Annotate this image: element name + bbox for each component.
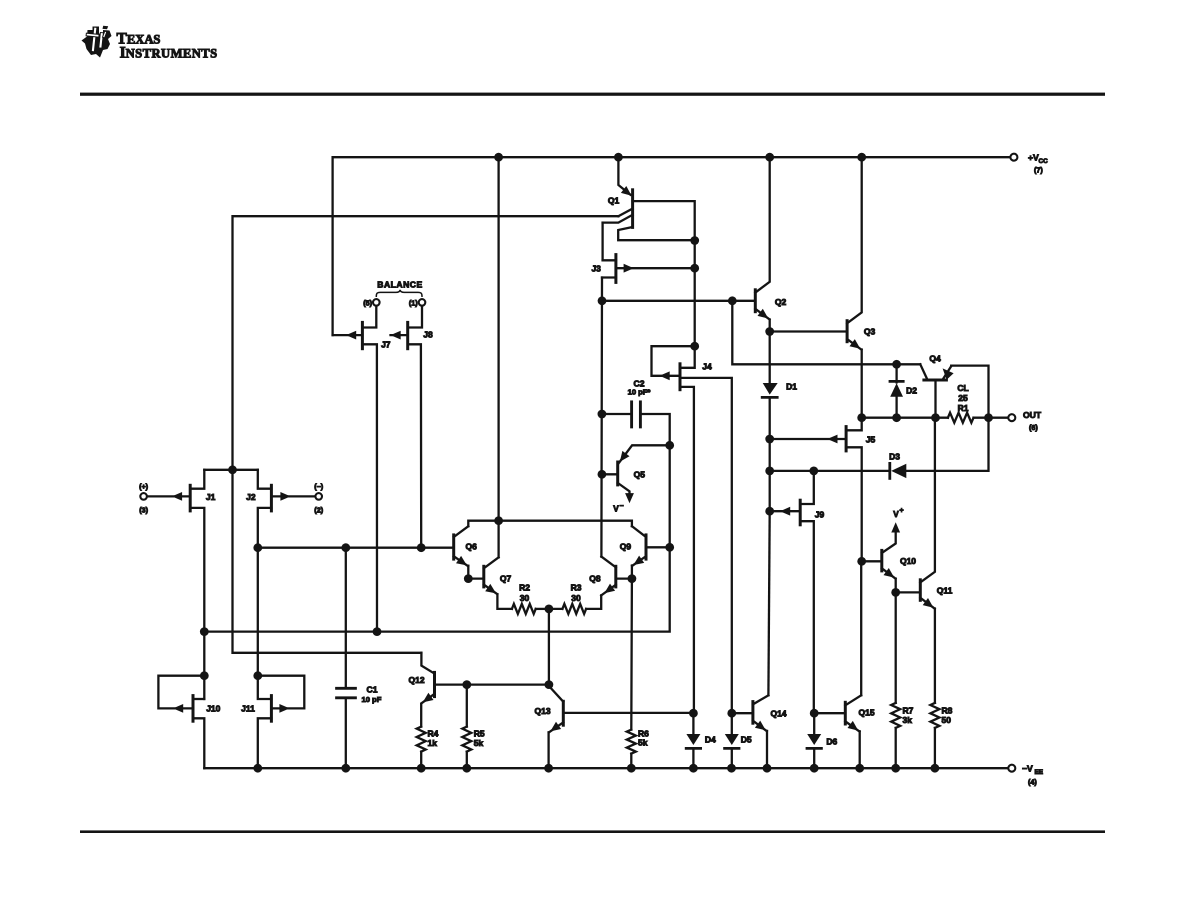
- svg-text:Q10: Q10: [900, 556, 916, 566]
- svg-text:J7: J7: [381, 339, 391, 349]
- svg-text:J5: J5: [866, 434, 876, 444]
- svg-text:J10: J10: [206, 704, 220, 714]
- svg-text:(1): (1): [409, 298, 418, 307]
- svg-text:CC: CC: [1039, 158, 1049, 165]
- svg-text:R3: R3: [571, 583, 582, 593]
- svg-text:50: 50: [942, 715, 952, 725]
- svg-text:Q4: Q4: [929, 354, 941, 364]
- svg-text:5k: 5k: [638, 738, 648, 748]
- svg-text:(7): (7): [1034, 166, 1043, 175]
- svg-text:Q14: Q14: [770, 709, 786, 719]
- svg-text:BALANCE: BALANCE: [377, 280, 423, 290]
- svg-text:Q7: Q7: [500, 574, 512, 584]
- svg-text:V: V: [613, 505, 619, 514]
- svg-text:30: 30: [571, 593, 581, 603]
- svg-text:J4: J4: [702, 362, 712, 372]
- svg-text:R5: R5: [474, 729, 485, 739]
- svg-text:3k: 3k: [903, 715, 913, 725]
- svg-text:−: −: [619, 503, 623, 510]
- svg-text:R8: R8: [942, 705, 953, 715]
- svg-text:Q2: Q2: [775, 297, 787, 307]
- svg-text:R2: R2: [519, 583, 530, 593]
- svg-text:(5): (5): [363, 298, 372, 307]
- svg-text:C1: C1: [367, 685, 378, 695]
- svg-text:D3: D3: [889, 451, 900, 461]
- svg-text:5k: 5k: [474, 738, 484, 748]
- svg-text:(+): (+): [139, 482, 149, 491]
- svg-text:OUT: OUT: [1023, 410, 1042, 420]
- svg-text:R1: R1: [958, 403, 969, 413]
- svg-text:J2: J2: [246, 492, 256, 502]
- svg-text:D2: D2: [906, 385, 917, 395]
- svg-text:10 pF*: 10 pF*: [628, 387, 651, 396]
- svg-text:1k: 1k: [428, 738, 438, 748]
- svg-text:Q1: Q1: [608, 195, 620, 205]
- svg-text:Q15: Q15: [859, 707, 875, 717]
- svg-text:J8: J8: [423, 329, 433, 339]
- svg-text:−V: −V: [1022, 764, 1033, 774]
- svg-text:Q8: Q8: [589, 574, 601, 584]
- svg-text:D1: D1: [786, 382, 797, 392]
- svg-text:Q11: Q11: [937, 585, 953, 595]
- svg-text:D4: D4: [705, 734, 716, 744]
- svg-text:(3): (3): [139, 506, 148, 515]
- svg-text:25: 25: [958, 393, 968, 403]
- svg-text:Q3: Q3: [864, 327, 876, 337]
- svg-text:J3: J3: [591, 263, 601, 273]
- svg-text:(−): (−): [314, 482, 324, 491]
- svg-text:R4: R4: [428, 729, 439, 739]
- svg-text:Q5: Q5: [634, 469, 646, 479]
- svg-text:INSTRUMENTS: INSTRUMENTS: [120, 45, 218, 62]
- svg-text:30: 30: [520, 593, 530, 603]
- svg-text:(6): (6): [1029, 423, 1038, 432]
- svg-text:(2): (2): [314, 506, 323, 515]
- svg-text:Q12: Q12: [409, 675, 425, 685]
- svg-text:Q9: Q9: [620, 541, 632, 551]
- svg-text:V: V: [893, 510, 899, 519]
- svg-text:D6: D6: [826, 737, 837, 747]
- svg-text:10 pF: 10 pF: [362, 695, 382, 704]
- svg-text:+V: +V: [1028, 153, 1039, 163]
- svg-text:(4): (4): [1028, 778, 1037, 787]
- svg-text:J11: J11: [241, 704, 255, 714]
- svg-text:+: +: [899, 508, 903, 515]
- svg-text:Q13: Q13: [535, 706, 551, 716]
- svg-text:J9: J9: [815, 510, 825, 520]
- svg-text:R7: R7: [903, 705, 914, 715]
- svg-text:J1: J1: [206, 492, 216, 502]
- svg-text:CL: CL: [957, 383, 968, 393]
- svg-text:D5: D5: [741, 734, 752, 744]
- svg-text:EE: EE: [1035, 769, 1044, 776]
- svg-text:Q6: Q6: [466, 541, 478, 551]
